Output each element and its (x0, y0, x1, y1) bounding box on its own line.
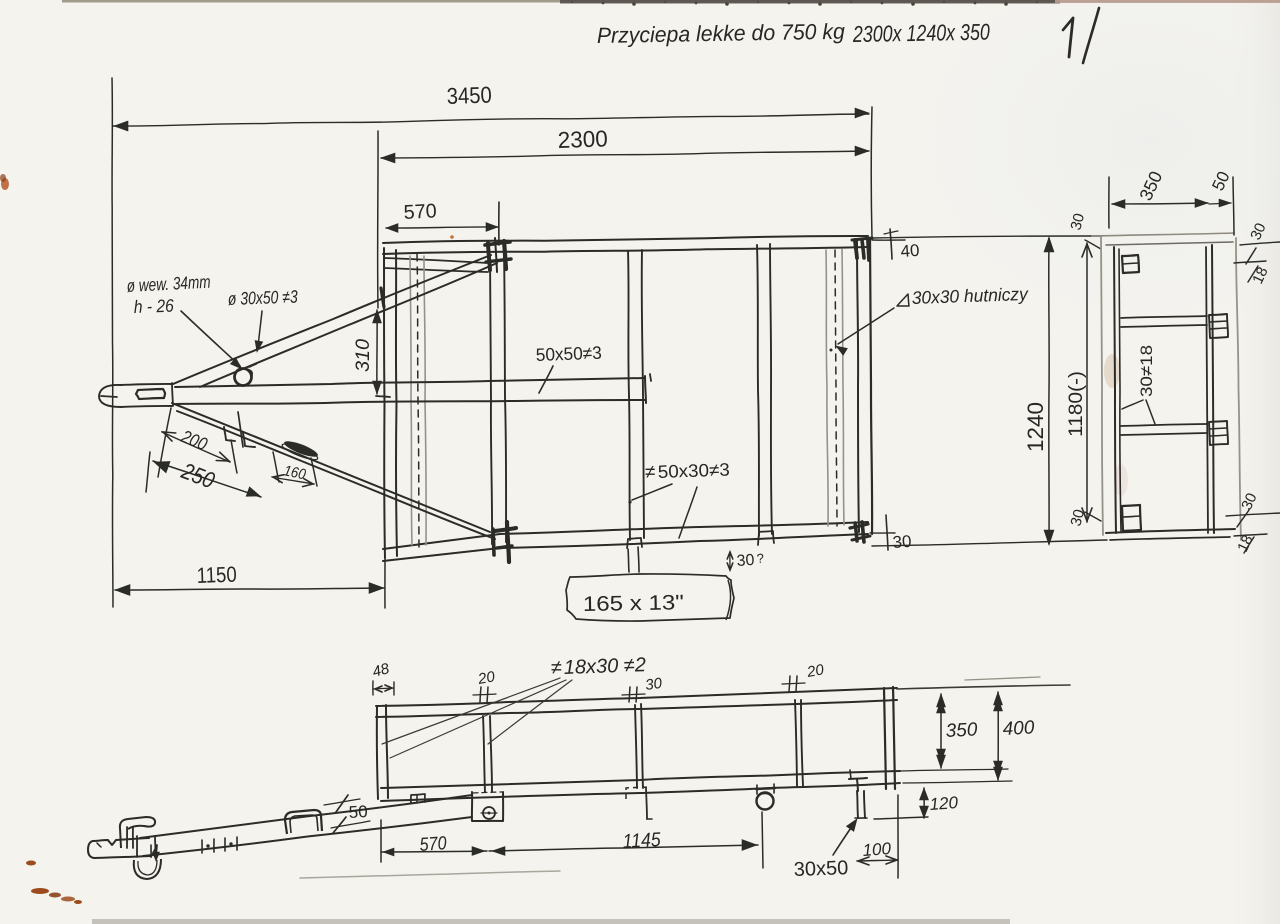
svg-text:570: 570 (419, 833, 448, 856)
svg-text:570: 570 (403, 200, 437, 224)
svg-text:20: 20 (476, 668, 497, 688)
svg-text:100: 100 (862, 839, 892, 860)
svg-text:50x30≠3: 50x30≠3 (657, 459, 730, 482)
svg-text:1180(-): 1180(-) (1066, 371, 1087, 437)
svg-text:40: 40 (900, 241, 920, 261)
svg-text:400: 400 (1002, 717, 1035, 740)
svg-text:≠︎: ≠︎ (645, 462, 655, 483)
svg-text:1240: 1240 (1023, 402, 1048, 452)
svg-text:1145: 1145 (622, 829, 662, 853)
svg-text:18x30 ≠2: 18x30 ≠2 (563, 654, 646, 679)
svg-text:310: 310 (353, 339, 374, 372)
svg-text:30x50: 30x50 (793, 857, 848, 881)
svg-text:20: 20 (805, 661, 826, 681)
svg-text:3450: 3450 (446, 81, 492, 109)
svg-text:30x30 hutniczy: 30x30 hutniczy (911, 284, 1029, 308)
svg-text:2300: 2300 (557, 125, 608, 153)
svg-text:Przyciepa lekke do 750 kg: Przyciepa lekke do 750 kg (597, 19, 846, 48)
svg-text:30: 30 (736, 552, 755, 570)
svg-text:1150: 1150 (196, 562, 237, 588)
svg-text:h - 26: h - 26 (133, 296, 175, 317)
svg-text:30≠18: 30≠18 (1137, 345, 1156, 397)
svg-text:50x50≠3: 50x50≠3 (535, 343, 602, 365)
svg-text:30: 30 (892, 532, 912, 552)
svg-text:2300x 1240x 350: 2300x 1240x 350 (852, 19, 990, 47)
svg-text:30: 30 (644, 675, 664, 694)
svg-text:165 x 13": 165 x 13" (583, 591, 684, 616)
svg-text:120: 120 (929, 793, 959, 814)
svg-text:?: ? (756, 551, 764, 566)
svg-text:350: 350 (945, 719, 978, 742)
svg-text:≠︎: ≠︎ (551, 657, 562, 679)
svg-text:ø 30x50 ≠3: ø 30x50 ≠3 (227, 287, 298, 309)
svg-text:50: 50 (348, 802, 368, 822)
